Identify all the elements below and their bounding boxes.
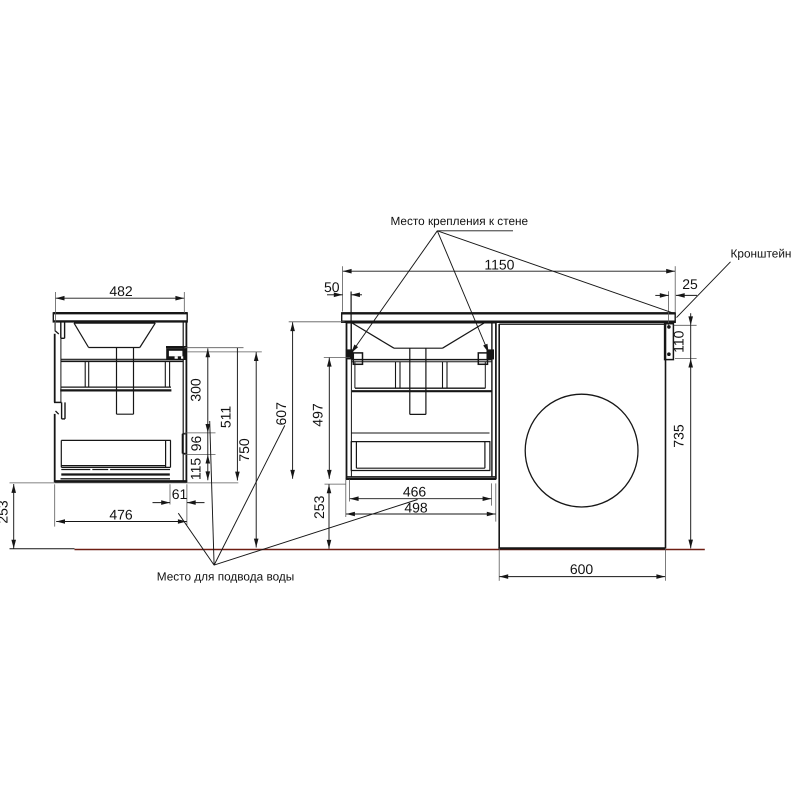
svg-text:607: 607 (273, 402, 289, 426)
svg-text:96: 96 (188, 436, 204, 452)
svg-text:115: 115 (188, 458, 204, 481)
svg-text:Место для подвода воды: Место для подвода воды (157, 570, 295, 584)
svg-text:476: 476 (109, 506, 133, 522)
svg-text:Место крепления к стене: Место крепления к стене (390, 214, 528, 228)
svg-text:750: 750 (236, 438, 252, 462)
svg-text:50: 50 (324, 279, 340, 295)
svg-text:482: 482 (109, 283, 133, 299)
svg-text:25: 25 (682, 276, 698, 292)
svg-text:300: 300 (188, 378, 204, 402)
svg-text:61: 61 (172, 486, 188, 502)
svg-text:253: 253 (311, 495, 327, 519)
svg-text:110: 110 (671, 330, 687, 353)
svg-text:253: 253 (0, 500, 10, 524)
svg-text:600: 600 (570, 561, 594, 577)
svg-text:735: 735 (670, 424, 686, 448)
svg-text:511: 511 (218, 406, 234, 429)
svg-text:1150: 1150 (484, 256, 514, 272)
svg-text:498: 498 (404, 500, 428, 516)
svg-text:466: 466 (403, 484, 427, 500)
svg-text:497: 497 (310, 403, 326, 427)
svg-text:Кронштейн: Кронштейн (731, 246, 792, 260)
